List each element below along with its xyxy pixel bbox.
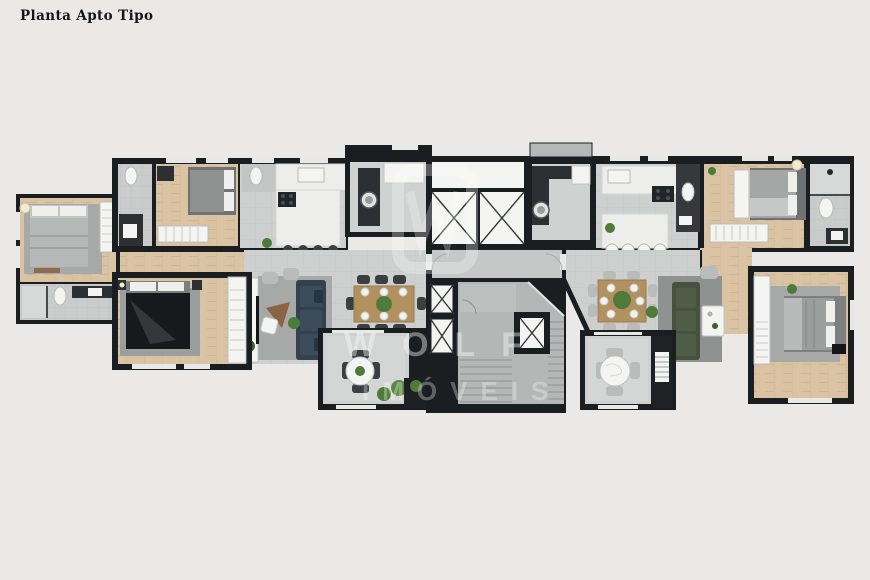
centerpiece-plant-icon [613, 291, 631, 309]
window-slot [788, 398, 832, 403]
laundry-right [526, 143, 596, 248]
stair-landing [460, 284, 516, 312]
floorplan-image: Planta Apto Tipo [0, 0, 870, 580]
toilet-icon [125, 167, 137, 185]
door-slot-right-apartment [560, 254, 566, 270]
suite-right-bed [784, 296, 846, 352]
washing-machine-icon [361, 192, 377, 208]
wardrobe-bedroom-3 [228, 277, 246, 363]
plant-icon [288, 317, 300, 329]
master-suite-right [748, 266, 854, 404]
plant-icon [355, 366, 365, 376]
plant-icon [787, 284, 797, 294]
window-slot [392, 145, 418, 150]
cabinet [572, 166, 590, 184]
bed-3-left [126, 281, 190, 349]
sink-icon [88, 288, 102, 296]
master-suite-left [16, 194, 120, 324]
showerhead-icon [827, 169, 833, 175]
watermark-text-line2: IMÓVEIS [362, 376, 561, 406]
window-slot [774, 156, 792, 161]
kitchen-left [240, 164, 346, 255]
window-slot [300, 158, 328, 163]
watermark-text-line1: WOLF [344, 326, 548, 364]
armchair [700, 266, 718, 279]
lamp-icon [120, 283, 125, 288]
toilet-icon [250, 167, 262, 185]
plant-icon [712, 323, 718, 329]
window-slot [252, 158, 274, 163]
lamp-icon [20, 203, 30, 213]
suite-bathroom-left [20, 284, 116, 320]
sink-icon [298, 168, 324, 182]
bathroom-right [806, 156, 854, 252]
plant-icon [262, 238, 272, 248]
floorplan-drawing: WOLF IMÓVEIS [0, 0, 870, 580]
window-slot [16, 246, 20, 268]
sliding-door-slot [594, 332, 642, 335]
plant-icon [708, 167, 716, 175]
window-slot [132, 364, 176, 369]
stove-icon [278, 192, 296, 207]
bed-2-left [188, 167, 236, 215]
balcony-right [580, 330, 676, 410]
coffee-table-right [702, 306, 724, 336]
right-apartment [562, 156, 854, 410]
bedroom-3-left [112, 272, 252, 370]
shaft-1 [430, 284, 454, 314]
upper-row-left [112, 158, 348, 255]
toilet-icon [54, 287, 66, 305]
tv-icon [832, 344, 846, 354]
wardrobe-bedroom-2-right [710, 224, 768, 242]
sink-icon [679, 216, 692, 225]
window-slot [184, 364, 210, 369]
plant-icon [605, 223, 615, 233]
window-slot [16, 212, 20, 240]
bedroom-2-right [700, 156, 808, 252]
window-slot [850, 300, 854, 330]
shower [810, 164, 850, 194]
window-slot [610, 156, 640, 161]
wardrobe-suite-right [754, 276, 770, 364]
suite-left-bed [30, 205, 88, 267]
shower [22, 286, 46, 318]
armchair [262, 272, 278, 284]
bathroom-2-left [118, 164, 152, 246]
elevator-2 [480, 192, 524, 244]
bedroom-2-left [156, 164, 238, 246]
toilet-icon [819, 198, 833, 218]
window-slot [206, 158, 228, 163]
tv-icon [256, 296, 259, 344]
armchair-white [260, 317, 278, 335]
duct [530, 143, 592, 157]
stove-icon [652, 186, 674, 202]
sofa-right [672, 282, 700, 360]
bench [34, 268, 60, 273]
dresser [734, 170, 749, 218]
sink-icon [608, 170, 630, 183]
desk [157, 166, 174, 181]
armchair [283, 268, 299, 280]
window-slot [598, 405, 638, 409]
window-slot [742, 156, 768, 161]
round-table [600, 356, 630, 386]
plant-icon [646, 306, 658, 318]
bed-2-right [750, 168, 806, 220]
lavabo-right [676, 164, 700, 232]
service-shaft [652, 336, 672, 408]
window-slot [166, 158, 196, 163]
sink-icon [123, 224, 137, 238]
left-apartment [16, 145, 432, 410]
sink-icon [831, 231, 843, 240]
nightstand [192, 280, 202, 290]
toilet-icon [682, 183, 694, 201]
window-slot [648, 156, 668, 161]
washing-machine-icon [533, 202, 549, 218]
centerpiece-plant-icon [376, 296, 392, 312]
lamp-icon [792, 160, 802, 170]
dresser [158, 226, 208, 242]
